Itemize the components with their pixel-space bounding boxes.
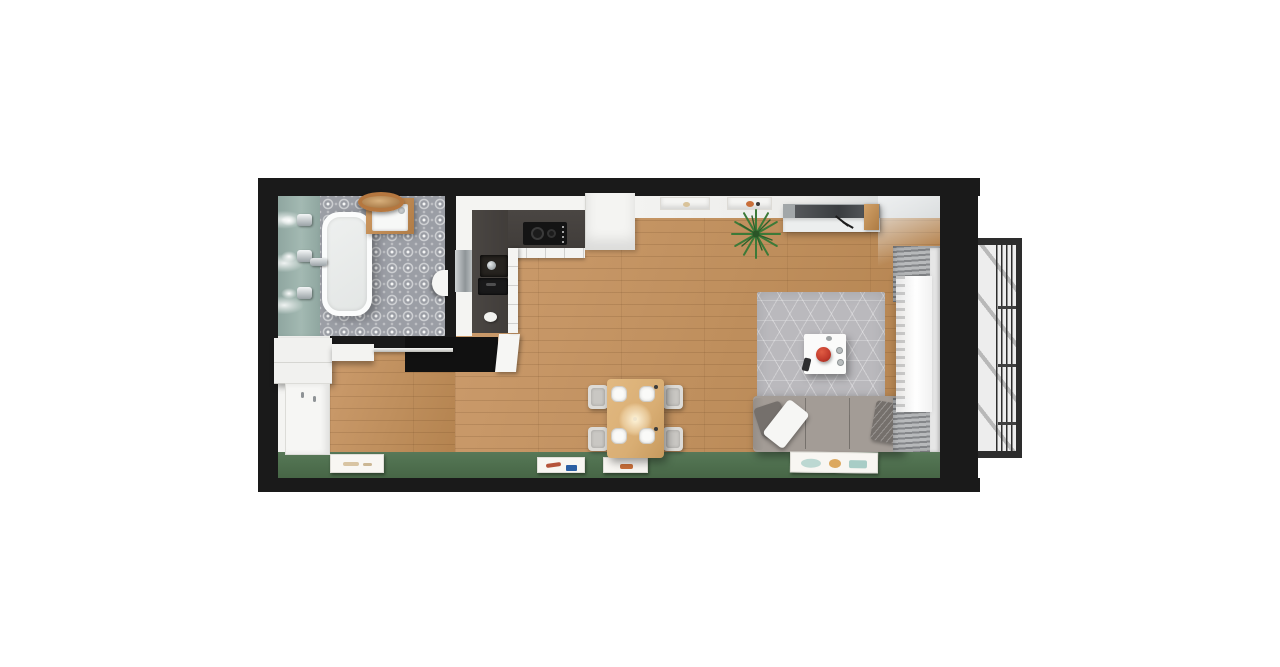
dining-chair (588, 427, 608, 451)
chair-seat (591, 430, 605, 448)
frame-artwork (849, 460, 867, 468)
potted-plant (730, 208, 782, 260)
picture-frame (330, 454, 384, 473)
cutlery (654, 385, 658, 389)
cooktop-knob (562, 241, 564, 243)
wall-sconce (297, 287, 312, 299)
chair-seat (666, 430, 680, 448)
built-in-appliance (478, 278, 508, 295)
cooktop-knob (562, 236, 564, 238)
table-decor-item (826, 336, 832, 341)
tv-screen (795, 205, 868, 218)
sofa (753, 396, 903, 452)
bathtub (322, 212, 372, 316)
entrance-door (285, 383, 330, 455)
sconce-light-glow (281, 215, 297, 226)
sheer-curtain (896, 276, 932, 412)
dining-table (607, 379, 664, 458)
west-wall (258, 178, 278, 492)
cutlery (654, 427, 658, 431)
picture-frame (603, 457, 648, 473)
burner (547, 229, 556, 238)
shelf-decor-item (756, 202, 760, 206)
dining-chair (663, 427, 683, 451)
wardrobe-face-line (274, 362, 332, 363)
bathroom-door-leaf (432, 270, 448, 296)
table-candle (633, 417, 637, 421)
cooktop (523, 222, 567, 245)
kitchen-cabinet-side-edge (508, 248, 518, 333)
cup (836, 347, 843, 354)
chair-seat (666, 388, 680, 406)
door-handle (313, 396, 316, 402)
coat-rail (374, 348, 453, 352)
plate (611, 428, 627, 444)
appliance-handle (486, 283, 496, 286)
kitchen-cabinet-front-edge (508, 248, 585, 258)
bathtub-faucet (310, 258, 327, 266)
hall-shelf (332, 344, 374, 361)
frame-artwork (566, 465, 577, 471)
railing-frame (1016, 238, 1022, 458)
dining-chair (588, 385, 608, 409)
frame-artwork (343, 462, 359, 466)
shelf-decor-item (683, 202, 690, 207)
bathtub-basin (327, 217, 367, 311)
entry-partition-wall (405, 337, 498, 372)
metal-panel (455, 250, 472, 292)
tv-wood-decor (864, 204, 879, 230)
cooktop-knob (562, 226, 564, 228)
floor-plan-render (0, 0, 1280, 667)
remote-control (802, 357, 812, 371)
dining-chair (663, 385, 683, 409)
wall-shelf (660, 197, 710, 210)
picture-frame (537, 457, 585, 473)
shelf-decor-item (746, 201, 754, 207)
plate (639, 386, 655, 402)
kitchen-tall-cabinet (585, 193, 635, 250)
door-handle (301, 392, 304, 398)
coffee-table (804, 334, 846, 374)
east-wall (940, 178, 978, 492)
plate (611, 386, 627, 402)
round-wood-mirror (358, 192, 404, 212)
wardrobe (274, 338, 332, 384)
sheer-curtain-ruffle (896, 276, 905, 412)
cooktop-knob (562, 231, 564, 233)
sconce-light-glow (281, 288, 297, 299)
cup (837, 359, 844, 366)
red-bowl (816, 347, 831, 362)
frame-artwork (620, 464, 633, 469)
south-wall (258, 478, 980, 492)
counter-bowl (484, 312, 497, 322)
burner (531, 227, 544, 240)
plate (639, 428, 655, 444)
kitchen-faucet (487, 261, 496, 270)
wall-sconce (297, 214, 312, 226)
open-interior-door (495, 334, 520, 372)
frame-artwork (363, 463, 372, 466)
sconce-light-glow (281, 251, 297, 262)
frame-artwork (829, 459, 841, 468)
picture-frame (790, 452, 878, 474)
frame-artwork (546, 462, 561, 468)
frame-artwork (801, 459, 821, 468)
chair-seat (591, 388, 605, 406)
